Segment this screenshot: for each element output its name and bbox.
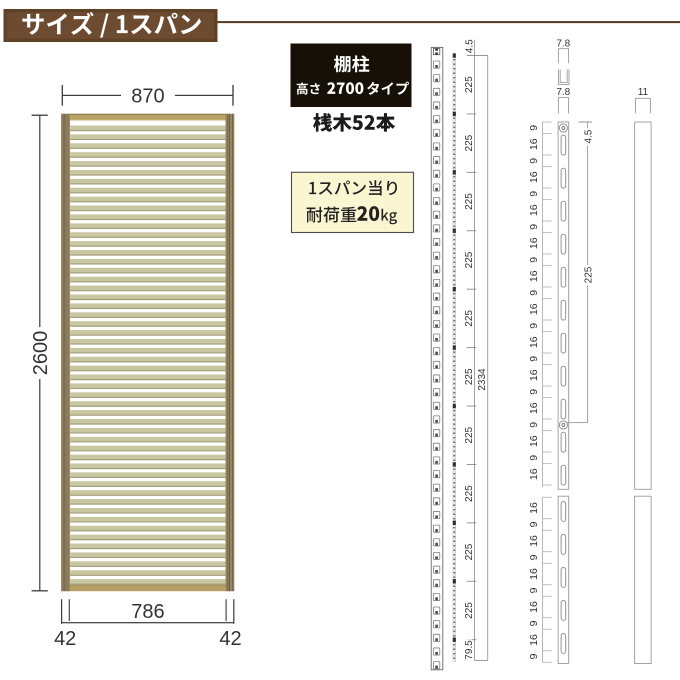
svg-text:225: 225 [464, 426, 475, 443]
svg-text:225: 225 [584, 266, 595, 283]
svg-text:9: 9 [528, 191, 540, 197]
svg-text:16: 16 [528, 601, 540, 613]
svg-text:42: 42 [219, 628, 241, 650]
svg-text:786: 786 [131, 601, 164, 623]
svg-text:9: 9 [528, 224, 540, 230]
svg-text:9: 9 [528, 653, 540, 659]
svg-text:2600: 2600 [30, 331, 52, 376]
svg-text:225: 225 [464, 310, 475, 327]
svg-text:225: 225 [464, 368, 475, 385]
svg-text:9: 9 [528, 389, 540, 395]
svg-text:225: 225 [464, 76, 475, 93]
svg-text:9: 9 [528, 587, 540, 593]
svg-text:870: 870 [131, 86, 164, 108]
svg-text:225: 225 [464, 193, 475, 210]
svg-text:9: 9 [528, 323, 540, 329]
svg-text:2334: 2334 [477, 368, 488, 391]
svg-text:16: 16 [528, 270, 540, 282]
svg-text:16: 16 [528, 336, 540, 348]
svg-text:225: 225 [464, 134, 475, 151]
svg-text:42: 42 [54, 628, 76, 650]
svg-text:16: 16 [528, 468, 540, 480]
svg-text:16: 16 [528, 535, 540, 547]
svg-text:9: 9 [528, 290, 540, 296]
svg-text:225: 225 [464, 251, 475, 268]
svg-text:225: 225 [464, 602, 475, 619]
svg-text:11: 11 [638, 87, 649, 98]
svg-text:79.5: 79.5 [464, 640, 475, 660]
svg-text:16: 16 [528, 502, 540, 514]
svg-text:16: 16 [528, 204, 540, 216]
svg-text:16: 16 [528, 303, 540, 315]
svg-text:225: 225 [464, 485, 475, 502]
svg-text:9: 9 [528, 356, 540, 362]
svg-text:16: 16 [528, 402, 540, 414]
svg-text:9: 9 [528, 422, 540, 428]
svg-text:4.5: 4.5 [584, 129, 595, 143]
svg-text:9: 9 [528, 521, 540, 527]
svg-text:7.8: 7.8 [556, 87, 570, 98]
svg-text:225: 225 [464, 543, 475, 560]
svg-text:16: 16 [528, 634, 540, 646]
svg-text:4.5: 4.5 [464, 39, 475, 53]
svg-text:9: 9 [528, 620, 540, 626]
svg-text:16: 16 [528, 138, 540, 150]
svg-text:16: 16 [528, 237, 540, 249]
svg-text:9: 9 [528, 125, 540, 131]
svg-text:9: 9 [528, 455, 540, 461]
svg-text:9: 9 [528, 158, 540, 164]
svg-text:9: 9 [528, 554, 540, 560]
svg-text:16: 16 [528, 435, 540, 447]
svg-text:16: 16 [528, 171, 540, 183]
svg-text:16: 16 [528, 369, 540, 381]
svg-text:16: 16 [528, 568, 540, 580]
svg-text:9: 9 [528, 257, 540, 263]
svg-text:7.8: 7.8 [556, 39, 570, 50]
